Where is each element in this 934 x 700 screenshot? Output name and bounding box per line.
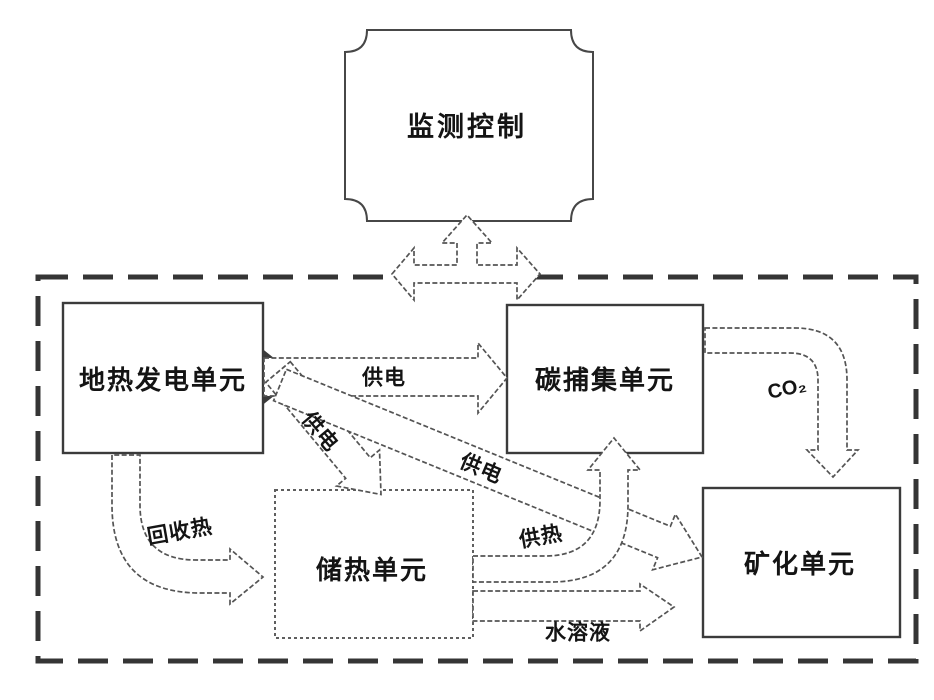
monitor-bidirectional-arrow bbox=[392, 215, 540, 300]
patent-figure-canvas: 监测控制 地热发电单元 碳捕集单元 储热单元 矿化单元 供电 供电 供 bbox=[0, 0, 934, 700]
aqueous-solution-label: 水溶液 bbox=[545, 621, 611, 645]
recovered-heat-label: 回收热 bbox=[145, 514, 214, 549]
heat-storage-unit-label: 储热单元 bbox=[316, 555, 428, 585]
mineralization-unit-label: 矿化单元 bbox=[744, 549, 856, 579]
co2-arrow bbox=[705, 328, 858, 477]
geothermal-unit-label: 地热发电单元 bbox=[79, 365, 247, 395]
system-diagram: 监测控制 地热发电单元 碳捕集单元 储热单元 矿化单元 供电 供电 供 bbox=[0, 0, 934, 700]
co2-label: CO₂ bbox=[766, 374, 809, 404]
power-to-carbon-label: 供电 bbox=[361, 366, 406, 390]
monitor-control-label: 监测控制 bbox=[407, 112, 527, 142]
heat-supply-label: 供热 bbox=[516, 521, 564, 552]
carbon-capture-unit-label: 碳捕集单元 bbox=[535, 365, 675, 395]
